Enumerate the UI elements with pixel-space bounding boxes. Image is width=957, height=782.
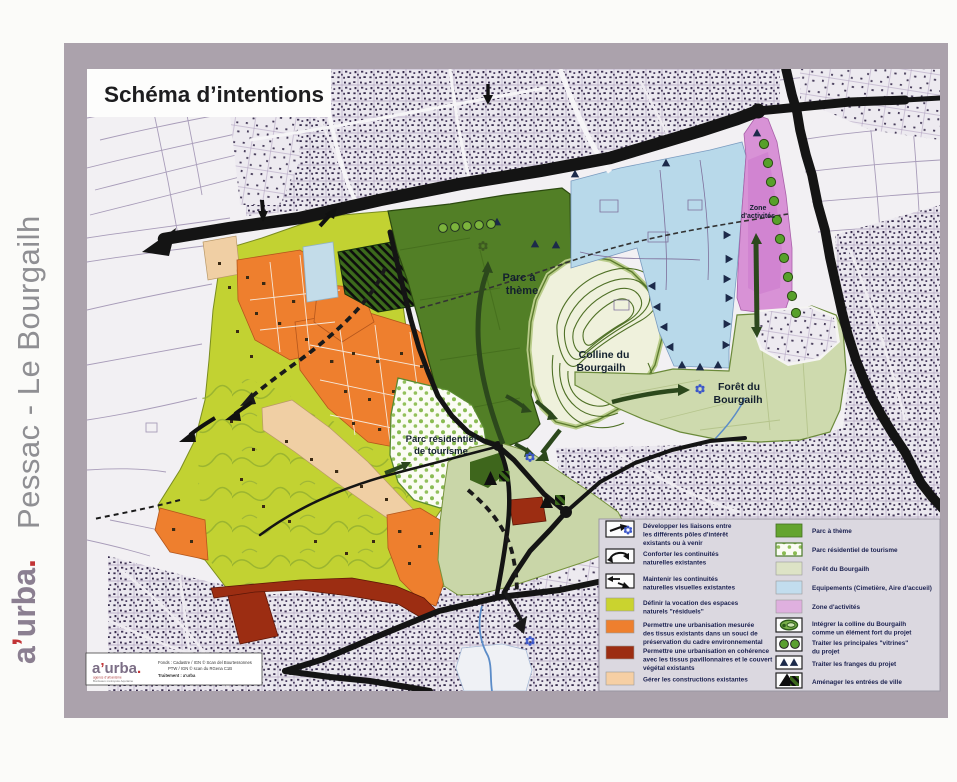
- svg-text:Colline du: Colline du: [579, 349, 630, 361]
- svg-text:Zone d'activités: Zone d'activités: [812, 604, 860, 611]
- svg-text:Maintenir les continuités: Maintenir les continuités: [643, 576, 718, 583]
- svg-text:naturelles existantes: naturelles existantes: [643, 560, 707, 567]
- svg-text:Schéma d’intentions: Schéma d’intentions: [104, 82, 324, 107]
- svg-text:Parc résidentiel: Parc résidentiel: [406, 434, 477, 445]
- svg-text:PTW / IGN © scan du RGena C1B: PTW / IGN © scan du RGena C1B: [168, 666, 232, 671]
- svg-text:Parc à thème: Parc à thème: [812, 528, 852, 535]
- svg-text:Parc résidentiel de tourisme: Parc résidentiel de tourisme: [812, 547, 898, 554]
- svg-text:avec les tissus pavillonnaires: avec les tissus pavillonnaires et le cou…: [643, 657, 773, 664]
- svg-text:Définir la vocation des espace: Définir la vocation des espaces: [643, 600, 739, 607]
- svg-text:Forêt du Bourgailh: Forêt du Bourgailh: [812, 566, 869, 573]
- svg-text:comme un élément fort du proje: comme un élément fort du projet: [812, 630, 912, 637]
- svg-text:thème: thème: [506, 285, 538, 297]
- svg-text:Parc à: Parc à: [502, 272, 536, 284]
- svg-text:Développer les liaisons entre: Développer les liaisons entre: [643, 523, 732, 530]
- svg-text:Intégrer la colline du Bourgai: Intégrer la colline du Bourgailh: [812, 621, 906, 628]
- svg-text:Fonds : Cadastre / IGN © Scan: Fonds : Cadastre / IGN © Scan del Bourte…: [158, 660, 252, 665]
- svg-text:existants ou à venir: existants ou à venir: [643, 540, 703, 547]
- svg-text:Bourgailh: Bourgailh: [577, 362, 626, 374]
- svg-text:naturels "résiduels": naturels "résiduels": [643, 609, 704, 616]
- svg-text:Permettre une urbanisation en: Permettre une urbanisation en cohérence: [643, 648, 770, 655]
- svg-text:Conforter les continuités: Conforter les continuités: [643, 551, 719, 558]
- svg-text:Permettre une urbanisation mes: Permettre une urbanisation mesurée: [643, 622, 755, 629]
- svg-text:les différents pôles d'intérêt: les différents pôles d'intérêt: [643, 532, 729, 539]
- svg-text:Aménager les entrées de ville: Aménager les entrées de ville: [812, 679, 902, 686]
- svg-text:Traitement : a'urba: Traitement : a'urba: [158, 673, 196, 678]
- svg-text:de tourisme: de tourisme: [414, 446, 468, 457]
- svg-text:Zone: Zone: [750, 205, 767, 212]
- svg-text:Forêt du: Forêt du: [718, 381, 760, 393]
- svg-text:préservation du cadre enviro: préservation du cadre environnemental: [643, 639, 763, 646]
- svg-text:Bourgailh: Bourgailh: [714, 394, 763, 406]
- svg-text:a’urba.: a’urba.: [92, 660, 141, 677]
- svg-text:Bordeaux métropole Aquitaine: Bordeaux métropole Aquitaine: [93, 679, 134, 683]
- svg-text:Traiter les principales "vitri: Traiter les principales "vitrines": [812, 640, 908, 647]
- svg-text:du projet: du projet: [812, 649, 840, 656]
- svg-text:Gérer les constructions exista: Gérer les constructions existantes: [643, 677, 748, 684]
- svg-text:Equipements (Cimetière, Aire d: Equipements (Cimetière, Aire d'accueil): [812, 585, 932, 592]
- svg-text:végétal existants: végétal existants: [643, 665, 695, 672]
- svg-text:Traiter les franges du projet: Traiter les franges du projet: [812, 661, 897, 668]
- svg-text:d'activités: d'activités: [741, 213, 775, 220]
- svg-text:naturelles visuelles existante: naturelles visuelles existantes: [643, 585, 735, 592]
- svg-text:des tissus existants dans un s: des tissus existants dans un souci de: [643, 631, 758, 638]
